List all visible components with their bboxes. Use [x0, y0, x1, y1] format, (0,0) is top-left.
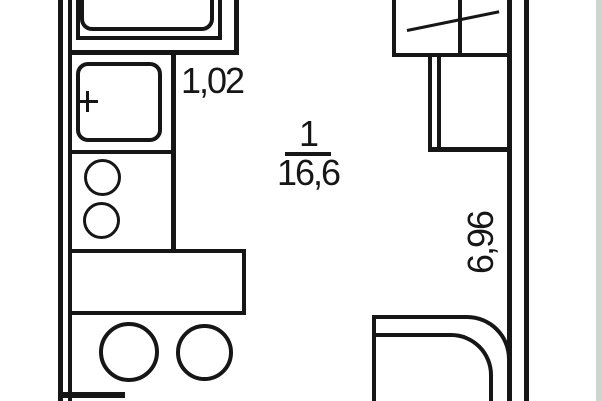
- wardrobe-divider: [458, 0, 462, 53]
- page-edge-strip: [596, 0, 601, 401]
- wall-right-outer: [524, 0, 529, 401]
- bathtub-inner: [80, 0, 214, 31]
- floor-plan: 1,02 1 16,6 6,96: [0, 0, 601, 401]
- wall-left-inner: [68, 0, 72, 401]
- stool-2: [176, 324, 233, 381]
- partition-wall: [171, 51, 176, 249]
- room-label: 1 16,6: [263, 116, 353, 190]
- sink-drain-cross-v: [86, 91, 89, 112]
- sofa-outline-inner: [372, 333, 493, 401]
- wall-right-inner: [507, 0, 512, 401]
- wall-bottom-stub: [58, 392, 125, 398]
- shaft-line-inner: [437, 55, 441, 152]
- shaft-bottom: [428, 147, 511, 152]
- room-area-label: 16,6: [263, 156, 353, 190]
- bathroom-wall-right: [234, 0, 239, 55]
- wall-left-outer: [58, 0, 63, 401]
- shaft-line-outer: [428, 55, 432, 152]
- room-number-label: 1: [263, 116, 353, 152]
- shelf-line: [68, 150, 176, 154]
- sofa-left-edge: [372, 315, 376, 401]
- wall-length-label: 6,96: [463, 212, 499, 274]
- bathroom-wall-bottom: [68, 50, 239, 55]
- stool-1: [99, 322, 159, 382]
- stove-burner-2: [83, 202, 120, 239]
- bathroom-area-label: 1,02: [181, 63, 243, 99]
- stove-burner-1: [84, 159, 121, 196]
- table-counter: [68, 249, 246, 315]
